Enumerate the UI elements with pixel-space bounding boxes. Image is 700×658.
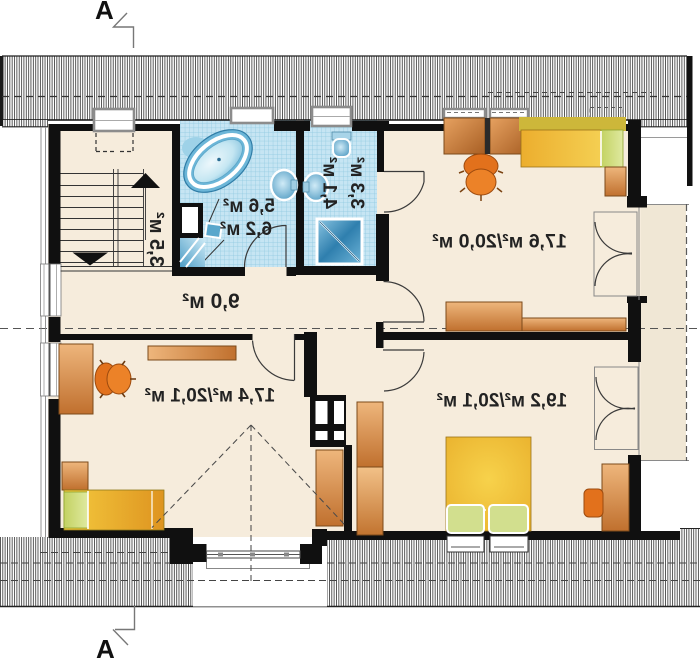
svg-text:3,5 м²: 3,5 м² (145, 212, 167, 267)
svg-text:6,2 м²: 6,2 м² (220, 219, 272, 240)
svg-text:A: A (95, 0, 114, 25)
svg-text:4,1 м²: 4,1 м² (319, 157, 340, 209)
svg-text:5,6 м²: 5,6 м² (223, 196, 275, 217)
svg-text:3,3 м²: 3,3 м² (346, 157, 367, 209)
svg-text:17,4 м²/20,1 м²: 17,4 м²/20,1 м² (145, 386, 276, 407)
svg-text:A: A (96, 634, 115, 658)
svg-text:17,6 м²/20,0 м²: 17,6 м²/20,0 м² (432, 231, 567, 253)
svg-text:19,2 м²/20,1 м²: 19,2 м²/20,1 м² (437, 391, 568, 412)
svg-text:9,0 м²: 9,0 м² (182, 290, 240, 313)
